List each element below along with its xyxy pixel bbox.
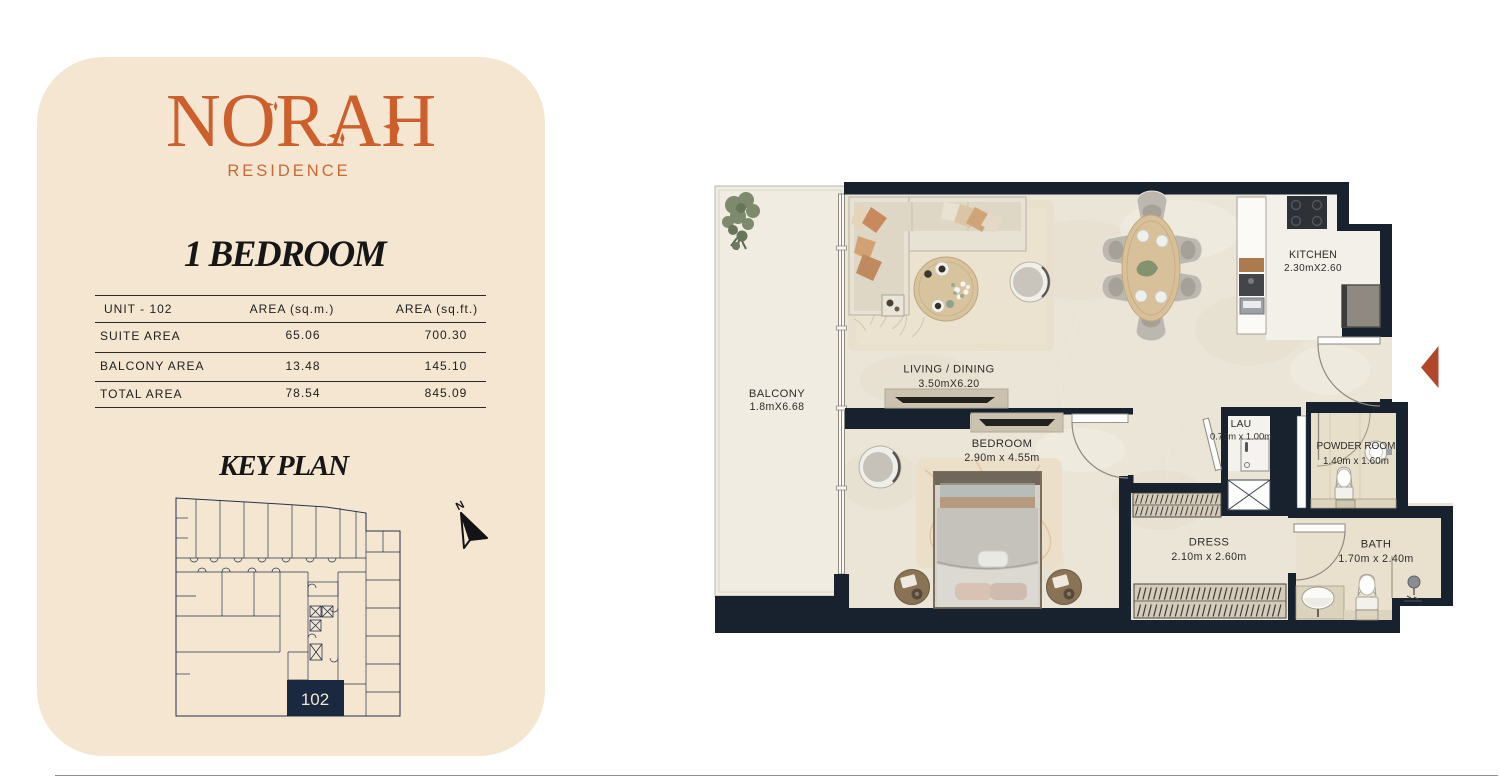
svg-text:1.8mX6.68: 1.8mX6.68	[750, 401, 805, 413]
svg-text:KITCHEN: KITCHEN	[1289, 249, 1337, 261]
svg-text:LAU: LAU	[1231, 419, 1252, 430]
svg-text:0.70m x 1.00m: 0.70m x 1.00m	[1210, 431, 1272, 442]
svg-text:2.90m x 4.55m: 2.90m x 4.55m	[964, 452, 1039, 464]
svg-text:BATH: BATH	[1361, 539, 1392, 551]
svg-text:DRESS: DRESS	[1189, 537, 1230, 549]
svg-text:102: 102	[301, 690, 329, 709]
svg-text:POWDER ROOM: POWDER ROOM	[1317, 441, 1396, 452]
svg-text:1.40m x 1.60m: 1.40m x 1.60m	[1323, 456, 1389, 467]
svg-text:N: N	[454, 499, 467, 513]
svg-text:BALCONY: BALCONY	[749, 388, 805, 400]
svg-text:BEDROOM: BEDROOM	[972, 438, 1033, 450]
svg-text:1.70m x 2.40m: 1.70m x 2.40m	[1338, 553, 1413, 565]
svg-text:3.50mX6.20: 3.50mX6.20	[918, 378, 979, 390]
svg-text:LIVING / DINING: LIVING / DINING	[903, 364, 994, 376]
svg-text:2.30mX2.60: 2.30mX2.60	[1284, 263, 1342, 274]
svg-text:2.10m x 2.60m: 2.10m x 2.60m	[1171, 551, 1246, 563]
